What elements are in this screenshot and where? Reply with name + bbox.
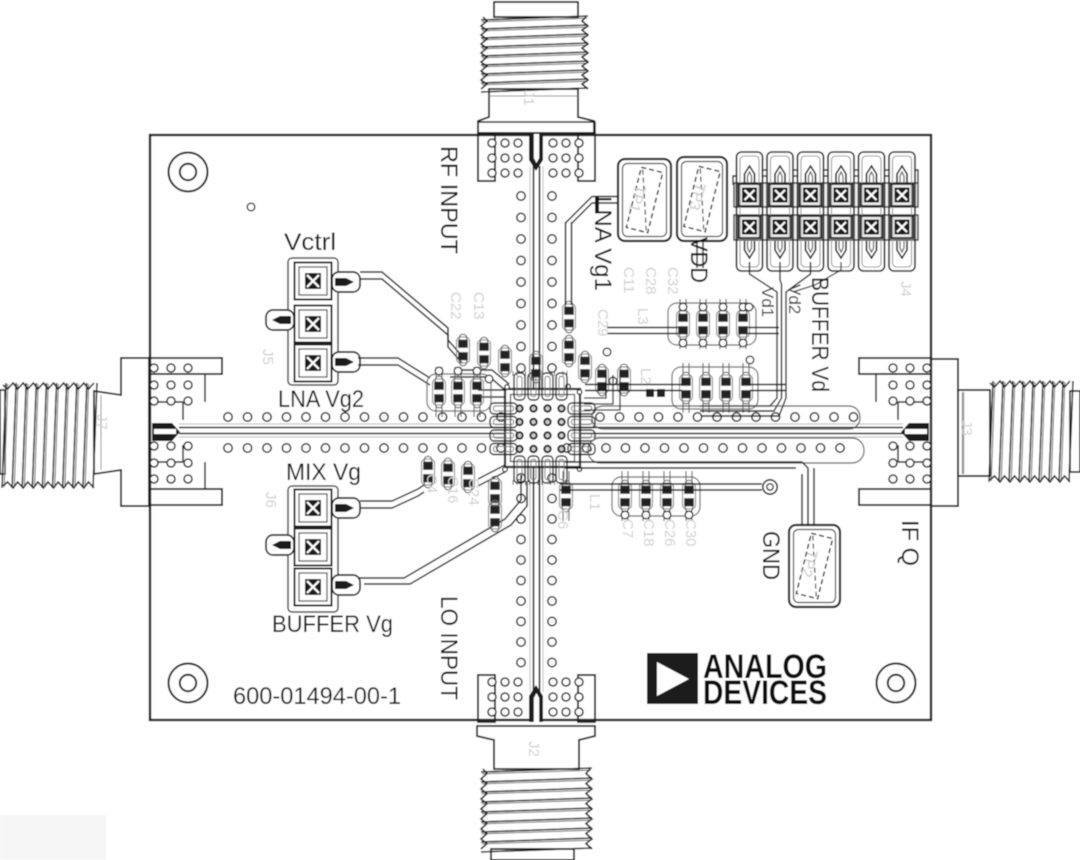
svg-text:VDD: VDD xyxy=(685,237,712,283)
svg-text:GND: GND xyxy=(757,531,784,580)
svg-text:J5: J5 xyxy=(259,349,276,365)
svg-text:RF INPUT: RF INPUT xyxy=(435,146,462,254)
svg-text:C4: C4 xyxy=(423,474,440,493)
svg-text:LO INPUT: LO INPUT xyxy=(435,596,462,700)
svg-text:J4: J4 xyxy=(897,281,914,297)
svg-text:Vd1: Vd1 xyxy=(758,287,777,317)
svg-text:C22: C22 xyxy=(447,292,464,320)
svg-text:C13: C13 xyxy=(470,292,487,320)
svg-text:C7: C7 xyxy=(619,519,636,538)
svg-text:C28: C28 xyxy=(642,267,659,295)
svg-text:BUFFER Vd: BUFFER Vd xyxy=(806,277,833,392)
svg-text:Vctrl: Vctrl xyxy=(284,229,336,256)
svg-text:LNA Vg2: LNA Vg2 xyxy=(278,386,364,413)
svg-text:J1: J1 xyxy=(520,90,537,106)
svg-text:C24: C24 xyxy=(465,478,482,506)
svg-text:C11: C11 xyxy=(620,267,637,293)
svg-text:C6: C6 xyxy=(554,510,571,529)
svg-text:Vd2: Vd2 xyxy=(785,284,804,314)
svg-text:L1: L1 xyxy=(586,494,603,511)
svg-text:DEVICES: DEVICES xyxy=(703,674,827,712)
svg-text:J3: J3 xyxy=(958,420,975,436)
svg-text:J7: J7 xyxy=(93,414,110,430)
svg-text:C16: C16 xyxy=(444,476,461,504)
svg-text:BUFFER Vg: BUFFER Vg xyxy=(272,611,393,638)
svg-text:IF Q: IF Q xyxy=(896,520,923,566)
svg-text:J6: J6 xyxy=(262,492,279,508)
svg-text:LNA Vg1: LNA Vg1 xyxy=(589,196,616,291)
svg-text:C32: C32 xyxy=(664,267,681,295)
svg-text:MIX Vg: MIX Vg xyxy=(286,459,361,486)
svg-text:L3: L3 xyxy=(634,308,651,325)
svg-text:C26: C26 xyxy=(661,519,678,547)
svg-text:C18: C18 xyxy=(640,519,657,547)
svg-text:C30: C30 xyxy=(682,519,699,547)
svg-text:C29: C29 xyxy=(594,309,611,337)
svg-text:L2: L2 xyxy=(637,368,654,385)
svg-text:600-01494-00-1: 600-01494-00-1 xyxy=(233,683,401,710)
svg-text:J2: J2 xyxy=(525,741,542,757)
